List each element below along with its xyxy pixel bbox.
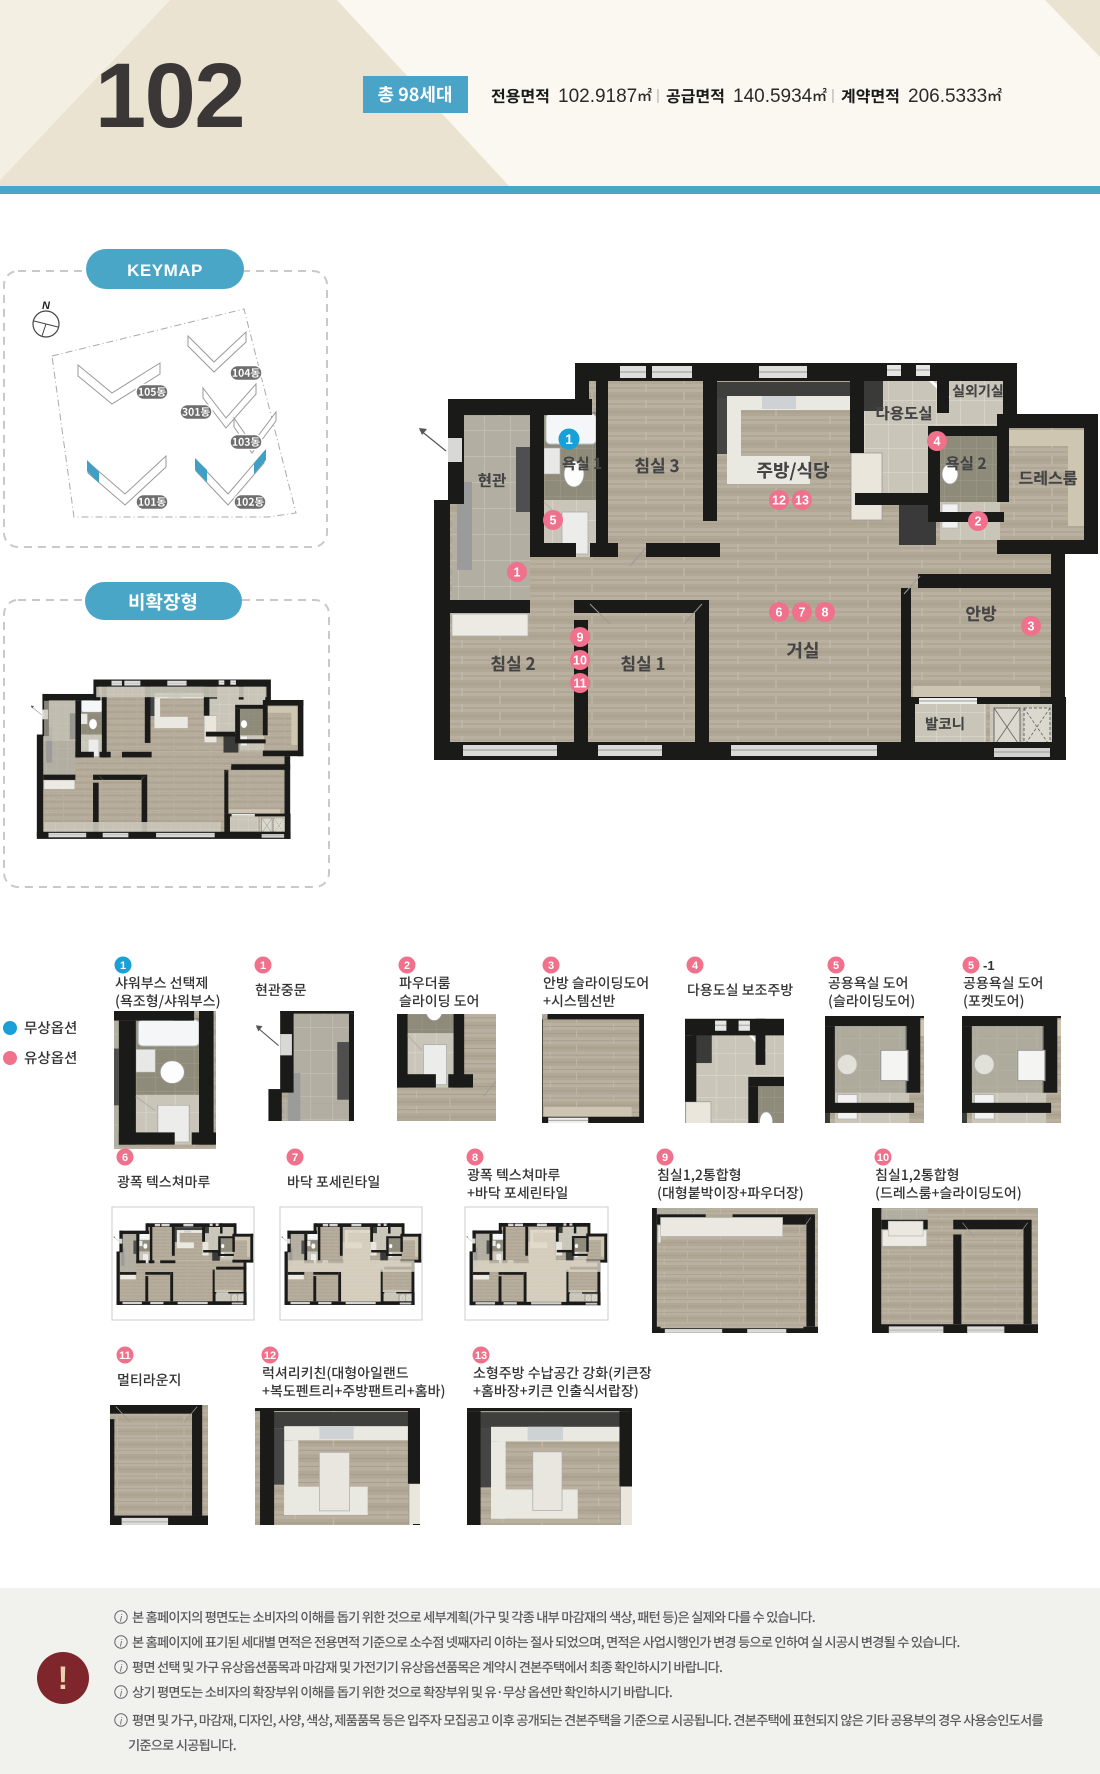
svg-text:1: 1 [565,432,573,447]
svg-text:13: 13 [795,494,809,508]
svg-text:5: 5 [968,960,974,972]
svg-text:6: 6 [122,1152,128,1164]
svg-text:13: 13 [475,1350,487,1362]
svg-text:3: 3 [548,960,554,972]
svg-text:10: 10 [573,654,587,668]
svg-text:3: 3 [1028,620,1035,634]
svg-text:2: 2 [975,515,982,529]
svg-text:102.9187: 102.9187 [558,86,637,107]
svg-text:-1: -1 [983,958,995,973]
svg-text:1: 1 [514,566,521,580]
svg-text:4: 4 [692,960,699,972]
svg-text:|: | [831,87,835,104]
svg-text:KEYMAP: KEYMAP [127,261,203,280]
svg-text:|: | [656,87,660,104]
svg-text:6: 6 [776,606,783,620]
svg-text:7: 7 [799,606,806,620]
svg-text:5: 5 [833,960,839,972]
svg-text:1: 1 [120,960,126,972]
svg-text:206.5333: 206.5333 [908,86,987,107]
svg-text:10: 10 [877,1152,889,1164]
svg-text:9: 9 [662,1152,668,1164]
svg-text:140.5934: 140.5934 [733,86,813,107]
svg-text:1: 1 [260,960,266,972]
svg-text:9: 9 [577,631,584,645]
svg-text:2: 2 [404,960,410,972]
svg-text:N: N [42,300,51,312]
svg-text:7: 7 [292,1152,298,1164]
svg-text:5: 5 [550,514,557,528]
svg-text:4: 4 [934,435,941,449]
svg-text:11: 11 [119,1350,131,1362]
svg-text:11: 11 [573,677,586,691]
svg-text:!: ! [58,1660,69,1696]
svg-text:102: 102 [95,45,244,147]
svg-text:8: 8 [822,606,829,620]
svg-text:12: 12 [264,1350,276,1362]
svg-text:8: 8 [472,1152,478,1164]
svg-text:12: 12 [772,494,786,508]
